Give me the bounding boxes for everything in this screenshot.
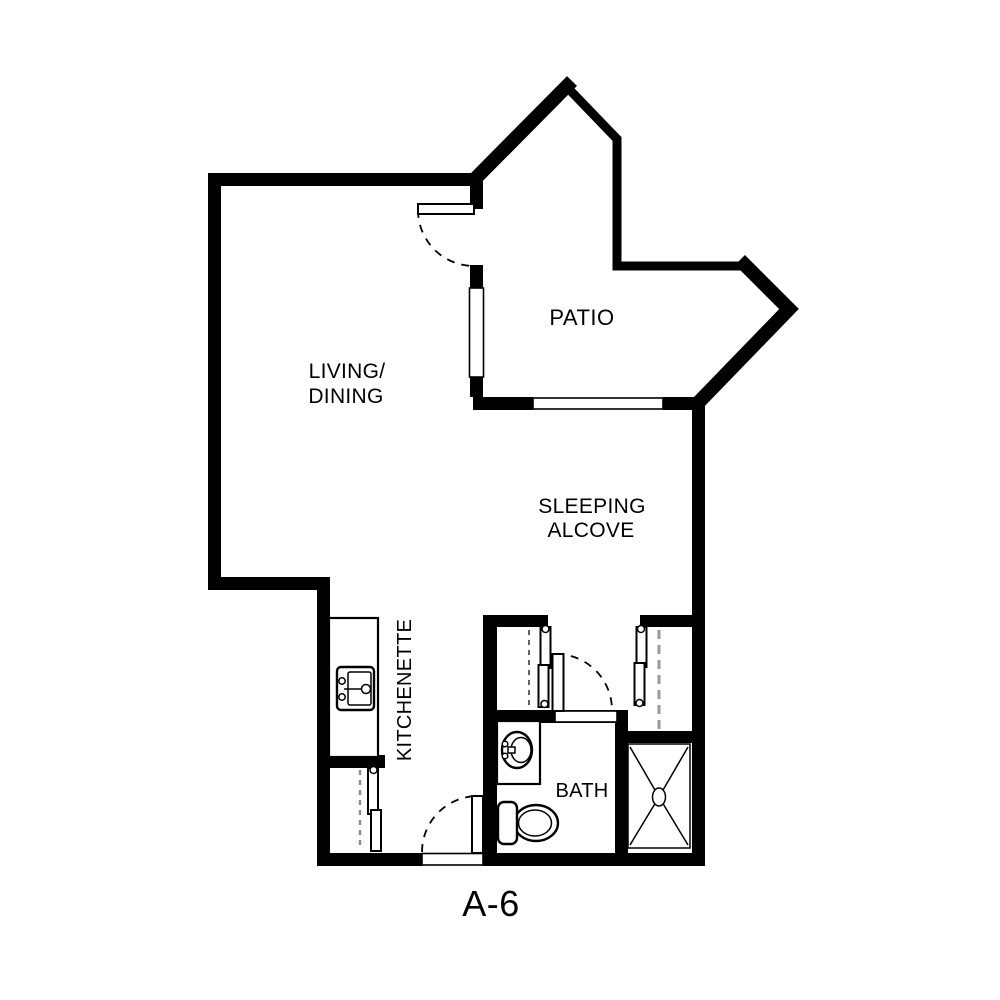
kitchen-faucet-handle <box>339 678 345 684</box>
bath-label: BATH <box>555 780 608 802</box>
floor-plan: LIVING/ DINING PATIO SLEEPING ALCOVE KIT… <box>0 0 1000 1000</box>
bath-door <box>553 654 618 722</box>
bathroom-faucet-handle <box>502 741 508 747</box>
wall-patio-left-c <box>470 377 483 397</box>
patio-door-swing-arc <box>418 210 474 266</box>
wall-patio-notch <box>565 85 747 266</box>
wall-shower-top <box>625 731 705 743</box>
wall-patio-diagonal-nw <box>469 81 572 185</box>
toilet <box>498 802 558 844</box>
entry-door-sill <box>422 854 483 866</box>
wall-patio-diagonal-se <box>697 260 789 404</box>
plan-title: A-6 <box>462 883 520 924</box>
wall-patio-left-b <box>470 265 483 288</box>
toilet-bowl-inner <box>519 810 552 836</box>
wall-shower-left <box>615 710 628 866</box>
closet-left-pivot <box>542 626 549 633</box>
closet-left-pivot <box>541 701 548 708</box>
entry-door-leaf <box>472 796 483 853</box>
patio-door-leaf <box>418 204 474 214</box>
shower <box>628 744 690 848</box>
patio-label: PATIO <box>549 305 614 330</box>
closet-left <box>529 626 551 708</box>
entry-door-swing-arc <box>422 796 478 852</box>
kitchen-faucet-head <box>362 685 371 694</box>
kitchen-sink <box>337 667 374 710</box>
bathroom-sink <box>502 732 532 768</box>
entry-door <box>422 796 483 865</box>
bath-door-leaf <box>553 654 564 711</box>
wall-bath-left <box>483 615 497 866</box>
wall-bottom-left <box>317 853 422 866</box>
bathroom-faucet-handle <box>502 753 508 759</box>
sleeping-alcove-label-line2: ALCOVE <box>548 519 635 542</box>
closet-right <box>635 626 660 730</box>
window-patio-bottom <box>533 398 663 409</box>
wall-living-bottom <box>208 577 330 590</box>
toilet-tank <box>498 802 517 844</box>
kitchenette-closet-door-panel <box>371 810 381 851</box>
closet-right-pivot <box>636 700 643 707</box>
wall-left <box>208 173 221 590</box>
kitchenette-label: KITCHENETTE <box>394 619 416 761</box>
closet-right-pivot <box>638 626 645 633</box>
closet-right-door-panel <box>635 663 645 705</box>
wall-top <box>208 173 483 186</box>
bath-door-sill <box>555 711 617 722</box>
sleeping-alcove-label-line1: SLEEPING <box>538 495 645 518</box>
wall-closet-right-stub <box>640 615 705 627</box>
wall-closet-left-stub <box>483 615 548 627</box>
living-dining-label-line2: DINING <box>308 385 383 408</box>
bathroom-faucet-spout <box>508 747 515 753</box>
wall-bottom-right <box>483 853 705 866</box>
kitchenette-closet-pivot <box>370 767 377 774</box>
kitchenette-closet <box>360 767 381 852</box>
wall-patio-bottom-a <box>473 397 533 410</box>
kitchenette-closet-door-panel <box>368 768 378 814</box>
patio-door <box>418 204 474 266</box>
wall-right <box>692 397 705 866</box>
living-dining-label-line1: LIVING/ <box>309 360 386 383</box>
shower-drain <box>653 788 666 806</box>
kitchen-faucet-handle <box>339 694 345 700</box>
window-patio-side <box>470 288 484 377</box>
